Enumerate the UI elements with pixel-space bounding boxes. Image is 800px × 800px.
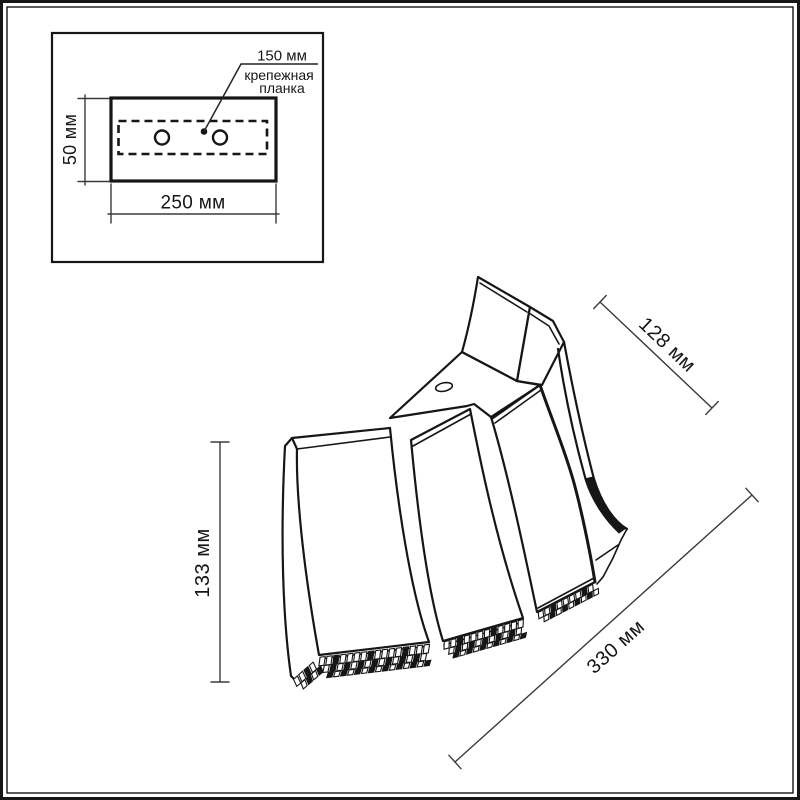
crystal-cell — [487, 642, 493, 648]
crystal-cell — [449, 647, 455, 655]
crystal-cell — [347, 653, 353, 662]
crystal-cell — [453, 652, 459, 658]
crystal-cell — [462, 643, 468, 651]
crystal-cell — [476, 639, 482, 647]
crystal-cell — [348, 669, 355, 675]
crystal-cell — [498, 625, 503, 634]
crystal-cell — [344, 663, 351, 671]
crystal-cell — [385, 658, 392, 666]
crystal-cell — [382, 665, 389, 671]
crystal-cell — [337, 663, 344, 671]
crystal-cell — [365, 660, 372, 668]
crystal-cell — [410, 662, 417, 668]
crystal-cell — [333, 655, 339, 664]
crystal-cell — [413, 654, 420, 662]
crystal-cell — [355, 669, 362, 675]
crystal-cell — [323, 665, 330, 673]
crystal-cell — [482, 637, 488, 645]
crystal-cell — [496, 633, 502, 641]
crystal-cell — [420, 653, 427, 661]
dim-label-133: 133 мм — [192, 528, 214, 597]
crystal-cell — [341, 670, 348, 676]
crystal-cell — [456, 645, 462, 653]
crystal-cell — [319, 657, 325, 666]
crystal-cell — [326, 656, 332, 665]
crystal-cell — [417, 661, 424, 667]
mounting-hole-left — [155, 131, 169, 145]
crystal-cell — [544, 614, 549, 622]
dimension-left-height: 133 мм — [192, 442, 229, 682]
crystal-cell — [396, 664, 403, 670]
dim-label-50: 50 мм — [60, 114, 80, 165]
crystal-cell — [406, 655, 413, 663]
crystal-cell — [491, 627, 496, 636]
crystal-cell — [444, 640, 449, 649]
crystal-cell — [354, 653, 360, 662]
crystal-cell — [362, 668, 369, 674]
crystal-cell — [372, 659, 379, 667]
crystal-cell — [458, 637, 463, 646]
crystal-cell — [403, 663, 410, 669]
crystal-cell — [518, 619, 523, 628]
crystal-cell — [423, 644, 429, 653]
lamp-left-side-edge — [283, 438, 298, 683]
crystal-cell — [395, 648, 401, 657]
crystal-cell — [494, 640, 500, 646]
crystal-cell — [340, 654, 346, 663]
crystal-cell — [473, 646, 479, 652]
dim-label-250: 250 мм — [161, 193, 226, 214]
crystal-cell — [505, 623, 510, 632]
crystal-cell — [368, 667, 375, 673]
crystal-cell — [399, 656, 406, 664]
technical-drawing-page: 150 мм крепежная планка 50 мм 250 мм — [0, 0, 800, 800]
dim-label-128: 128 мм — [634, 313, 700, 377]
crystal-cell — [402, 647, 408, 656]
crystal-cell — [478, 631, 483, 640]
lamp-rim-shaded-sliver — [585, 477, 626, 533]
crystal-cell — [317, 666, 323, 675]
crystal-cell — [503, 631, 509, 639]
crystal-cell — [514, 635, 520, 641]
crystal-cell — [471, 633, 476, 642]
dim-line-128 — [594, 296, 718, 415]
crystal-cell — [594, 588, 599, 596]
crystal-cell — [424, 660, 431, 666]
crystal-cell — [409, 646, 415, 655]
mounting-hole-right — [213, 131, 227, 145]
mounting-plate-inset: 150 мм крепежная планка 50 мм 250 мм — [52, 33, 323, 262]
crystal-cell — [464, 635, 469, 644]
inset-label-hole-spacing: 150 мм — [257, 48, 307, 65]
crystal-cell — [388, 648, 394, 657]
mounting-plate-rect — [111, 98, 276, 181]
crystal-cell — [389, 664, 396, 670]
lamp-panel-left — [292, 428, 429, 655]
crystal-cell — [330, 664, 337, 672]
crystal-cell — [480, 644, 486, 650]
dim-label-330: 330 мм — [583, 616, 649, 679]
inset-label-bracket-line2: планка — [259, 80, 305, 96]
crystal-cell — [509, 630, 515, 638]
crystal-cell — [538, 610, 544, 619]
crystal-cell — [351, 662, 358, 670]
crystal-cell — [507, 637, 513, 643]
crystal-cell — [381, 649, 387, 658]
crystal-cell — [358, 661, 365, 669]
crystal-cell — [416, 645, 422, 654]
crystal-cell — [379, 658, 386, 666]
crystal-cell — [361, 652, 367, 661]
crystal-cell — [327, 672, 334, 678]
crystal-cell — [375, 666, 382, 672]
crystal-cell — [511, 621, 516, 630]
crystal-cell — [500, 638, 506, 644]
crystal-cell — [375, 650, 381, 659]
lamp-drawing — [283, 277, 627, 689]
lamp-bottom-right-facets — [596, 529, 627, 584]
crystal-cell — [467, 648, 473, 654]
dimension-top-depth: 128 мм — [594, 296, 718, 415]
crystal-cell — [334, 671, 341, 677]
crystal-cell — [489, 635, 495, 643]
crystal-cell — [392, 657, 399, 665]
drawing-svg: 150 мм крепежная планка 50 мм 250 мм — [0, 0, 800, 800]
crystal-cell — [484, 629, 489, 638]
crystal-cell — [368, 651, 374, 660]
crystal-cell — [451, 639, 456, 648]
crystal-cell — [516, 628, 522, 636]
